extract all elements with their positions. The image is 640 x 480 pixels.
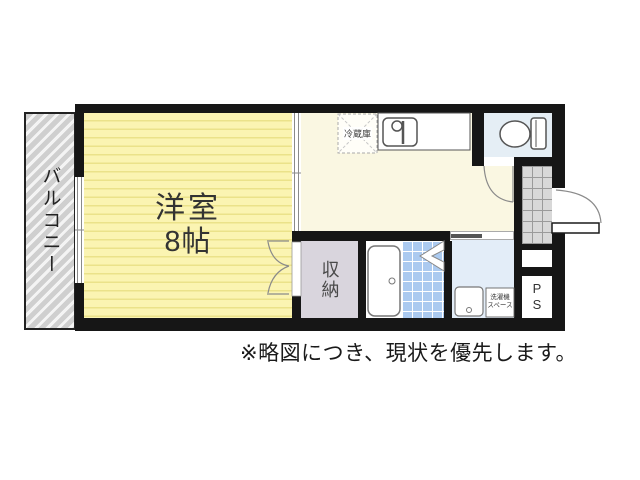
- washer-space-label: 洗濯機 スペース: [486, 288, 514, 316]
- floor-plan: バルコニー 収納 PS: [0, 0, 640, 480]
- refrigerator-label: 冷蔵庫: [338, 114, 377, 153]
- wall-left-lower: [75, 283, 84, 331]
- main-room-name: 洋室: [84, 192, 292, 226]
- wall-top: [75, 104, 565, 113]
- wall-toilet-left: [472, 113, 484, 157]
- closet-label: 収納: [317, 260, 343, 300]
- balcony: バルコニー: [24, 112, 76, 330]
- wall-toilet-bottom-right: [514, 157, 552, 166]
- entrance-doorway: [552, 188, 565, 232]
- wall-bath-washroom: [444, 241, 452, 318]
- sliding-partition-icon: [292, 113, 301, 231]
- wall-ps-top: [522, 267, 552, 276]
- bath-tile-floor: [402, 241, 444, 318]
- balcony-label: バルコニー: [37, 166, 64, 276]
- wall-genkan-bottom: [522, 244, 552, 250]
- wall-bottom: [75, 318, 565, 331]
- toilet-room: [484, 113, 552, 157]
- pipe-space: PS: [522, 276, 552, 318]
- bathroom: [366, 241, 444, 318]
- wall-left-upper: [75, 104, 84, 177]
- meter-recess: [522, 250, 552, 267]
- wall-closet-left-upper: [292, 241, 301, 244]
- washroom-door-panel: [451, 234, 482, 238]
- main-room-size: 8帖: [84, 226, 292, 258]
- closet: 収納: [301, 241, 358, 318]
- pipe-space-label: PS: [530, 281, 545, 313]
- entrance-genkan-tiles: [522, 166, 552, 244]
- disclaimer-note: ※略図につき、現状を優先します。: [240, 337, 577, 367]
- main-room-label: 洋室 8帖: [84, 192, 292, 258]
- wall-genkan-left: [514, 157, 522, 318]
- toilet-doorway: [484, 157, 514, 166]
- wall-right-lower: [552, 232, 565, 331]
- wall-south-rooms-top: [292, 231, 450, 241]
- wall-closet-right: [358, 241, 366, 318]
- wall-toilet-bottom-left: [472, 157, 484, 166]
- window-icon: [75, 177, 84, 283]
- wall-closet-left-lower: [292, 295, 301, 318]
- wall-right-upper: [552, 104, 565, 188]
